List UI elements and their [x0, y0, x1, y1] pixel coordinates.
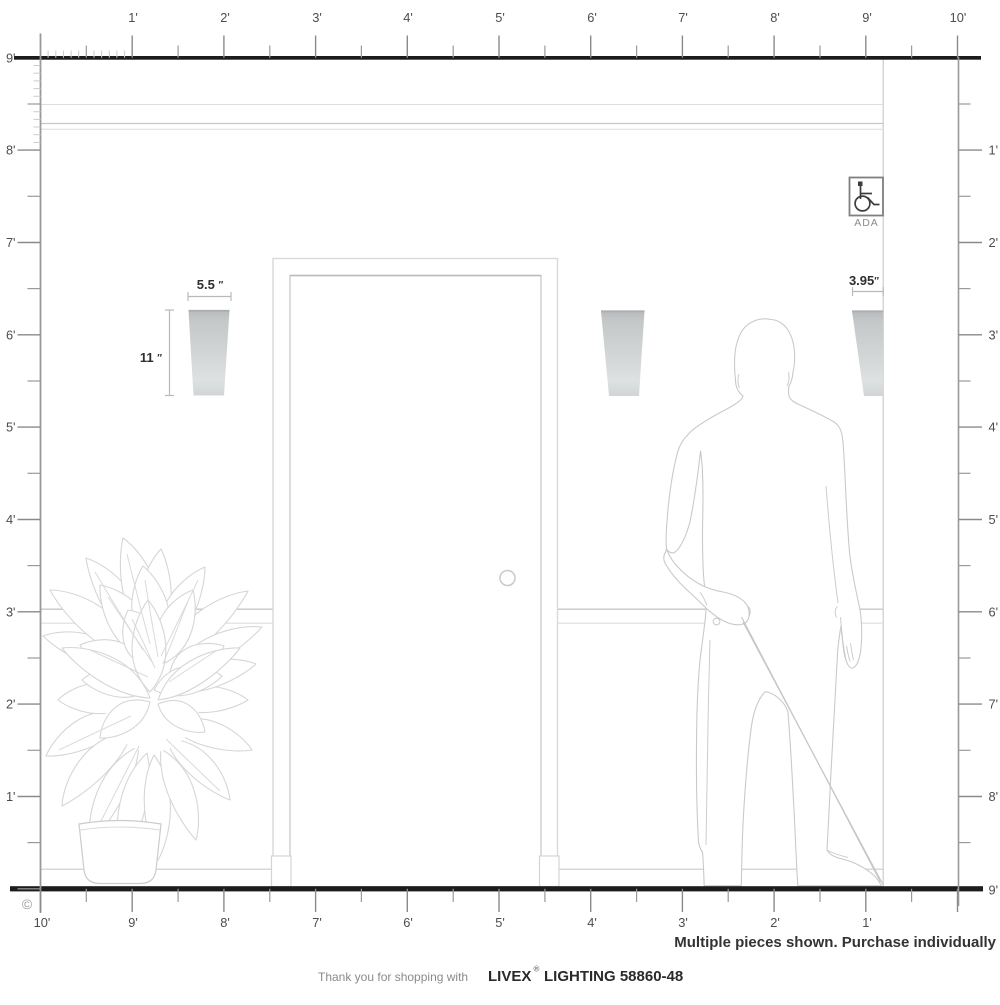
svg-text:Thank you for shopping with: Thank you for shopping with — [318, 970, 468, 984]
svg-text:2': 2' — [989, 235, 999, 250]
svg-text:1': 1' — [6, 789, 16, 804]
svg-text:9': 9' — [862, 10, 872, 25]
svg-text:4': 4' — [6, 512, 16, 527]
svg-text:5': 5' — [495, 915, 505, 930]
svg-text:8': 8' — [220, 915, 230, 930]
svg-text:8': 8' — [6, 143, 16, 158]
svg-text:3': 3' — [6, 604, 16, 619]
svg-text:ADA: ADA — [854, 217, 879, 229]
svg-text:©: © — [22, 896, 33, 912]
svg-text:9': 9' — [989, 883, 999, 898]
svg-text:9': 9' — [128, 915, 138, 930]
svg-text:11 ″: 11 ″ — [140, 350, 162, 365]
svg-text:2': 2' — [220, 10, 230, 25]
svg-text:8': 8' — [989, 789, 999, 804]
svg-text:4': 4' — [587, 915, 597, 930]
svg-text:3.95″: 3.95″ — [849, 273, 879, 288]
svg-text:6': 6' — [587, 10, 597, 25]
svg-text:LIGHTING 58860-48: LIGHTING 58860-48 — [544, 968, 683, 985]
svg-text:7': 7' — [678, 10, 688, 25]
svg-text:7': 7' — [312, 915, 322, 930]
svg-text:2': 2' — [770, 915, 780, 930]
svg-text:5.5 ″: 5.5 ″ — [197, 277, 224, 292]
svg-text:1': 1' — [128, 10, 138, 25]
svg-text:LIVEX: LIVEX — [488, 968, 531, 985]
svg-text:10': 10' — [950, 10, 967, 25]
svg-text:4': 4' — [403, 10, 413, 25]
svg-text:5': 5' — [6, 420, 16, 435]
svg-text:6': 6' — [403, 915, 413, 930]
svg-text:10': 10' — [34, 915, 51, 930]
svg-text:7': 7' — [989, 697, 999, 712]
svg-text:3': 3' — [312, 10, 322, 25]
svg-text:6': 6' — [6, 327, 16, 342]
svg-text:3': 3' — [678, 915, 688, 930]
svg-text:6': 6' — [989, 604, 999, 619]
svg-text:3': 3' — [989, 327, 999, 342]
svg-text:5': 5' — [495, 10, 505, 25]
svg-text:9': 9' — [6, 50, 16, 65]
svg-text:2': 2' — [6, 697, 16, 712]
svg-text:1': 1' — [989, 143, 999, 158]
svg-text:5': 5' — [989, 512, 999, 527]
svg-text:Multiple pieces shown. Purchas: Multiple pieces shown. Purchase individu… — [674, 934, 996, 951]
svg-text:8': 8' — [770, 10, 780, 25]
svg-text:4': 4' — [989, 420, 999, 435]
svg-text:7': 7' — [6, 235, 16, 250]
svg-text:®: ® — [534, 965, 540, 974]
svg-text:1': 1' — [862, 915, 872, 930]
